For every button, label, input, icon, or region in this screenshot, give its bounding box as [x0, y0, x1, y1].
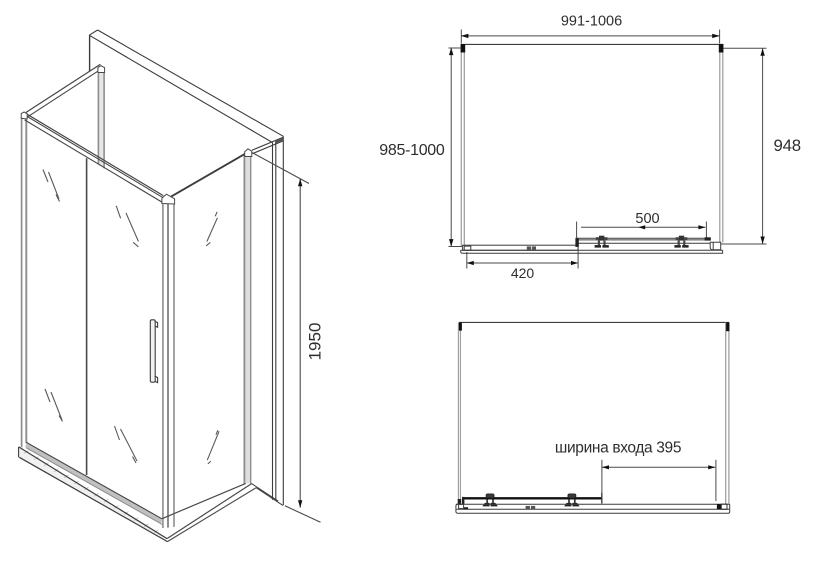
svg-text:420: 420	[511, 265, 535, 281]
svg-text:1950: 1950	[305, 323, 324, 361]
svg-text:991-1006: 991-1006	[561, 14, 622, 30]
svg-text:500: 500	[635, 211, 659, 227]
svg-text:948: 948	[774, 136, 801, 155]
svg-text:985-1000: 985-1000	[379, 142, 445, 159]
svg-text:ширина входа 395: ширина входа 395	[555, 439, 681, 456]
